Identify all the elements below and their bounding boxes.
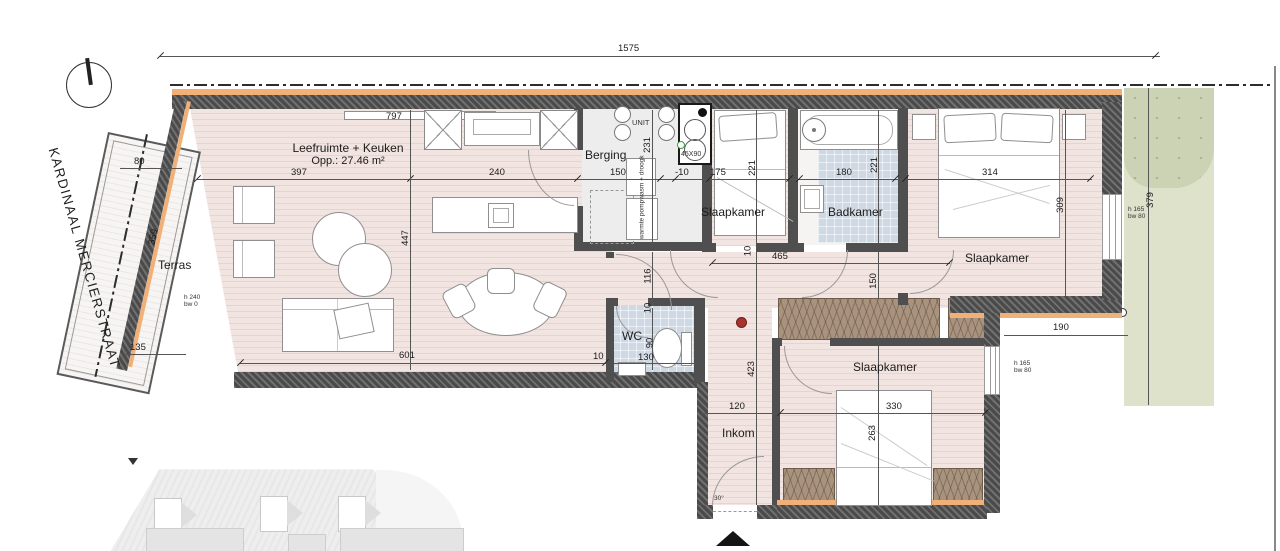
wall-inkom-left bbox=[697, 382, 708, 513]
floor-plan-canvas: 1575 797 397 447 240 150 231 -10 175 221… bbox=[0, 0, 1280, 551]
shower-head bbox=[802, 118, 826, 142]
cooktop-ring-2 bbox=[614, 124, 631, 141]
dim-line-berging-v bbox=[652, 110, 653, 242]
room-label-bedroom1: Slaapkamer bbox=[701, 206, 765, 219]
armchair-2 bbox=[233, 240, 275, 278]
wall-step-bedroom2 bbox=[950, 296, 1122, 313]
window-bedroom3 bbox=[984, 346, 1000, 395]
room-label-wc: WC bbox=[622, 330, 642, 343]
dim-hall-v: 423 bbox=[747, 361, 757, 377]
dim-line-wc bbox=[614, 363, 696, 364]
facade-dormer-2 bbox=[260, 496, 288, 532]
wall-bedroom2-left-stub bbox=[898, 293, 908, 305]
dim-bedroom1-h: 221 bbox=[748, 160, 758, 176]
facade-window-band-1 bbox=[146, 528, 244, 551]
kitchen-tall-unit-right bbox=[540, 110, 578, 150]
exterior-wall-right-mid bbox=[1102, 260, 1122, 300]
cooktop-ring-1 bbox=[614, 106, 631, 123]
dim-bedroom2-h: 309 bbox=[1056, 197, 1066, 213]
dim-terras-bottom: 135 bbox=[130, 343, 146, 353]
hall-wardrobe-left bbox=[778, 298, 940, 340]
entrance-threshold bbox=[713, 511, 757, 512]
dim-hall-w: 465 bbox=[772, 252, 788, 262]
kitchen-sink bbox=[488, 203, 514, 228]
room-label-bedroom2: Slaapkamer bbox=[965, 252, 1029, 265]
wall-wc-right bbox=[694, 298, 705, 384]
room-label-living: Leefruimte + Keuken Opp.: 27.46 m² bbox=[262, 142, 434, 168]
bedroom2-pillow-right bbox=[1000, 113, 1053, 144]
dim-line-total bbox=[160, 56, 1160, 57]
dim-bathroom-h: 221 bbox=[870, 157, 880, 173]
dim-line-hall-v2 bbox=[756, 252, 757, 505]
bathroom-tiles bbox=[818, 150, 898, 243]
facade-level-marker bbox=[128, 458, 138, 465]
label-heat-pump: warmte pomp bbox=[639, 192, 646, 248]
wall-bedroom3-top-b bbox=[830, 338, 988, 346]
dim-bedroom3-h: 263 bbox=[868, 425, 878, 441]
dim-hall-h: 116 bbox=[644, 268, 654, 283]
dim-kitchen-w: 240 bbox=[489, 168, 505, 178]
dim-line-living-bottom bbox=[240, 363, 606, 364]
exterior-wall-right-top bbox=[1102, 102, 1122, 194]
north-arrow-icon bbox=[66, 62, 112, 108]
bedroom3-bed bbox=[836, 390, 932, 506]
dim-line-setback bbox=[1004, 335, 1128, 336]
shaft-duct-dot bbox=[698, 108, 707, 117]
dim-bedroom2-w: 314 bbox=[982, 168, 998, 178]
exterior-wall-bedroom3-right-b bbox=[984, 395, 1000, 513]
wall-inkom-bottom-a bbox=[697, 505, 713, 519]
dim-line-bedroom3 bbox=[780, 413, 986, 414]
drawing-frame-line bbox=[1274, 66, 1276, 551]
dim-total: 1575 bbox=[618, 44, 639, 54]
dim-berging-w: 150 bbox=[610, 168, 626, 178]
exterior-wall-bedroom3-bottom bbox=[777, 505, 987, 519]
dim-wc-w: 130 bbox=[638, 353, 654, 363]
facade-dormer-3 bbox=[338, 496, 366, 532]
room-label-bathroom: Badkamer bbox=[828, 206, 883, 219]
room-label-berging: Berging bbox=[585, 149, 626, 162]
exterior-wall-top bbox=[172, 95, 1122, 109]
bedroom2-pillow-left bbox=[943, 113, 996, 144]
dim-line-bathroom-v bbox=[878, 110, 879, 243]
dim-door-angle: 30° bbox=[714, 495, 724, 502]
dim-living-bottom: 601 bbox=[399, 351, 415, 361]
facade-window-band-3 bbox=[340, 528, 464, 551]
dim-inkom-w: 120 bbox=[729, 402, 745, 412]
armchair-1 bbox=[233, 186, 275, 224]
entrance-arrow-icon bbox=[716, 531, 750, 546]
cooktop-ring-4 bbox=[658, 124, 675, 141]
dim-bathroom-w: 180 bbox=[836, 168, 852, 178]
property-boundary-line bbox=[170, 84, 1274, 86]
dim-living-top: 797 bbox=[386, 112, 402, 122]
dim-bedroom3-w: 330 bbox=[886, 402, 902, 412]
dim-wc-h: 90 bbox=[645, 338, 655, 349]
facade-elevation bbox=[88, 450, 463, 551]
dim-terras-top: 80 bbox=[134, 157, 145, 167]
label-shaft: 45X90 bbox=[681, 151, 701, 158]
dim-wc-off: 10 bbox=[593, 352, 604, 362]
shaft-valve-green bbox=[677, 141, 685, 149]
facade-window-band-2 bbox=[288, 534, 326, 551]
room-label-terras: Terras bbox=[158, 259, 191, 272]
pouf-2 bbox=[338, 243, 392, 297]
wall-inkom-bottom-b bbox=[757, 505, 777, 519]
dim-bedroom1-w: 175 bbox=[710, 168, 726, 178]
bedroom1-pillow bbox=[718, 112, 778, 142]
cooktop-ring-3 bbox=[658, 106, 675, 123]
window-tag-bedroom2: h 165 bw 80 bbox=[1128, 206, 1145, 220]
dim-line-terras-top bbox=[120, 168, 182, 169]
dim-hall-off: 10 bbox=[643, 303, 653, 314]
window-bedroom2 bbox=[1102, 194, 1122, 260]
smoke-detector-dot bbox=[736, 317, 747, 328]
bathroom-sink bbox=[800, 185, 824, 213]
living-name: Leefruimte + Keuken bbox=[262, 142, 434, 155]
toilet-tank bbox=[681, 332, 692, 366]
wall-bedroom3-left bbox=[772, 346, 780, 513]
dim-setback: 190 bbox=[1053, 323, 1069, 333]
wall-hall-left-a bbox=[606, 252, 614, 258]
dining-chair-2 bbox=[487, 268, 515, 294]
room-label-inkom: Inkom bbox=[722, 427, 755, 440]
label-unit: UNIT bbox=[632, 119, 650, 126]
dim-line-terras-bottom bbox=[124, 354, 186, 355]
insulation-step bbox=[950, 313, 1122, 318]
garden-dotted-area bbox=[1124, 88, 1214, 188]
dim-line-inkom bbox=[702, 413, 777, 414]
kitchen-appliance bbox=[464, 112, 540, 146]
room-label-bedroom3: Slaapkamer bbox=[853, 361, 917, 374]
window-tag-terras: h 240 bw 0 bbox=[184, 294, 200, 308]
dim-garden-h: 379 bbox=[1146, 192, 1156, 208]
dim-living-w: 397 bbox=[291, 168, 307, 178]
toilet-bowl bbox=[652, 328, 682, 368]
dim-line-garden-v bbox=[1148, 88, 1149, 405]
dim-line-bedroom1-v bbox=[756, 110, 757, 243]
window-tag-bedroom3: h 165 bw 80 bbox=[1014, 360, 1031, 374]
wall-bedroom3-top-a bbox=[772, 338, 782, 346]
living-area: Opp.: 27.46 m² bbox=[262, 155, 434, 168]
dim-hall-door: 10 bbox=[743, 246, 753, 257]
wall-hall-left-b bbox=[606, 300, 614, 382]
dim-joint: -10 bbox=[675, 168, 689, 178]
dim-closet-d: 150 bbox=[869, 273, 879, 289]
bedroom2-nightstand-left bbox=[912, 114, 936, 140]
dim-living-h: 447 bbox=[401, 230, 411, 246]
wc-sink bbox=[618, 362, 646, 376]
exterior-wall-bedroom3-right-a bbox=[984, 313, 1000, 346]
dim-line-hall bbox=[712, 263, 950, 264]
